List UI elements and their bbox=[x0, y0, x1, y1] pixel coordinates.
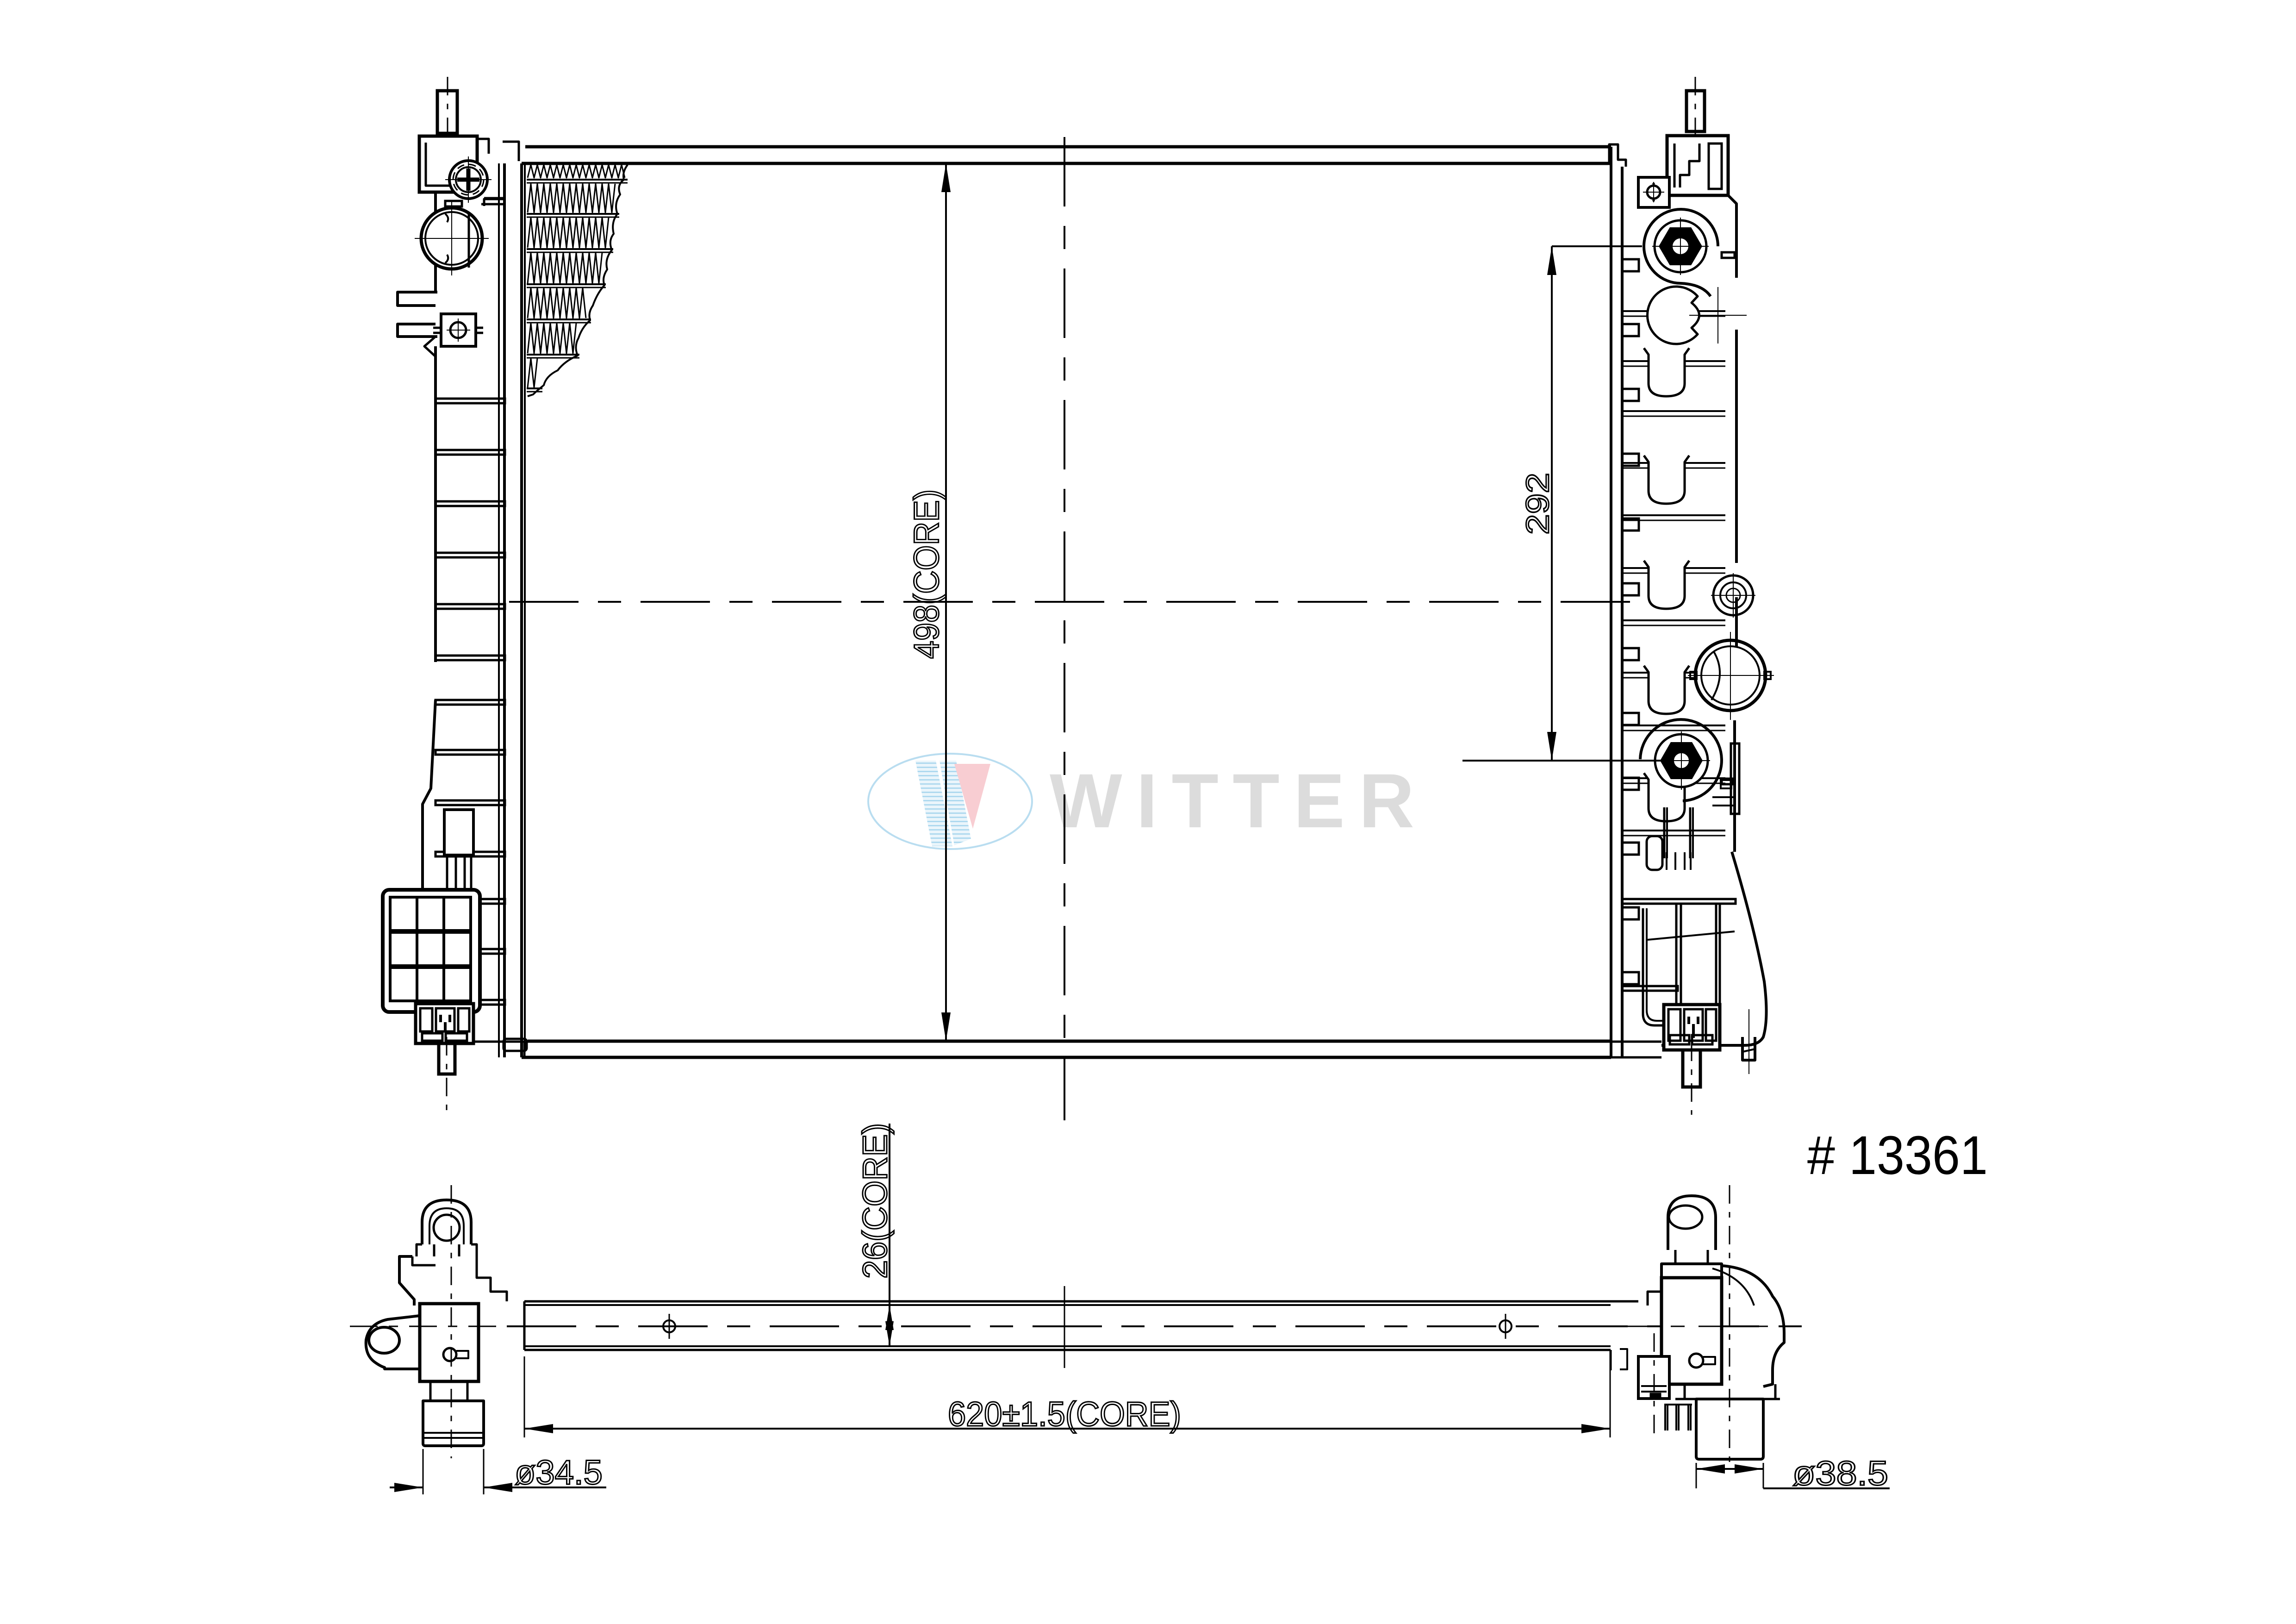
svg-text:26(CORE): 26(CORE) bbox=[856, 1123, 894, 1279]
svg-text:620±1.5(CORE): 620±1.5(CORE) bbox=[948, 1395, 1181, 1433]
svg-text:292: 292 bbox=[1519, 473, 1556, 535]
svg-text:WITTER: WITTER bbox=[1050, 758, 1414, 844]
svg-text:ø34.5: ø34.5 bbox=[515, 1453, 603, 1492]
svg-text:# 13361: # 13361 bbox=[1807, 1125, 1988, 1186]
svg-text:498(CORE): 498(CORE) bbox=[907, 489, 946, 659]
svg-text:ø38.5: ø38.5 bbox=[1792, 1454, 1888, 1493]
